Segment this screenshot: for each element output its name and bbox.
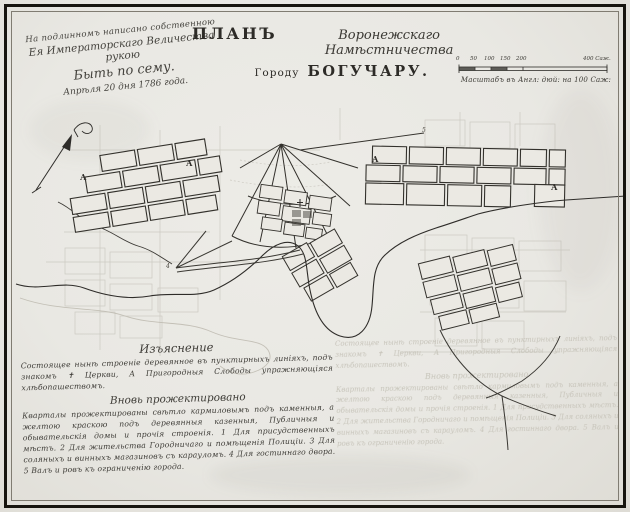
- legend-projected-text: Кварталы прожектированы свѣтло кармиловы…: [22, 402, 336, 476]
- quarter-letter-a: А: [372, 154, 379, 164]
- scale-end-label: 400 Саж.: [583, 56, 611, 62]
- scale-caption: Масштабъ въ Англ: дюй: на 100 Саж:: [455, 76, 617, 84]
- map-title: ПЛАНЪ Воронежскаго Намѣстничества Городу…: [192, 24, 492, 80]
- quarter-letter-a: А: [80, 172, 87, 182]
- scale-tick-label: 0: [456, 56, 460, 62]
- quarter-letter-a: А: [551, 182, 558, 192]
- scale-tick-labels: 0 50 100 150 200 400 Саж.: [455, 56, 617, 64]
- title-province-name: Воронежскаго Намѣстничества: [286, 28, 492, 58]
- legend: Изъяснение Состоящее нынѣ строенiе дерев…: [20, 337, 336, 477]
- plan-ref-numeral: 5: [422, 127, 426, 134]
- bleedthrough-text: Состоящее нынѣ строенiе деревянное въ пу…: [335, 333, 619, 449]
- bleedthrough-paragraph: Состоящее нынѣ строенiе деревянное въ пу…: [335, 333, 618, 371]
- title-word-gorodu: Городу: [254, 67, 299, 79]
- scale-tick-label: 200: [516, 56, 527, 62]
- legend-explanation-text: Состоящее нынѣ строенiе деревянное въ пу…: [21, 353, 334, 395]
- title-city-name: БОГУЧАРУ.: [307, 63, 429, 80]
- scale-box: 0 50 100 150 200 400 Саж. Масштабъ въ Ан…: [455, 56, 617, 84]
- scale-tick-label: 50: [470, 56, 477, 62]
- scale-tick-label: 150: [500, 56, 511, 62]
- bleedthrough-paragraph: Кварталы прожектированы свѣтло кармиловы…: [336, 379, 619, 450]
- title-word-plan: ПЛАНЪ: [192, 24, 277, 43]
- scale-tick-label: 100: [484, 56, 495, 62]
- quarter-letter-a: А: [186, 158, 193, 168]
- plan-ref-numeral: 4: [166, 263, 170, 270]
- map-sheet: Состоящее нынѣ строенiе деревянное въ пу…: [0, 0, 630, 512]
